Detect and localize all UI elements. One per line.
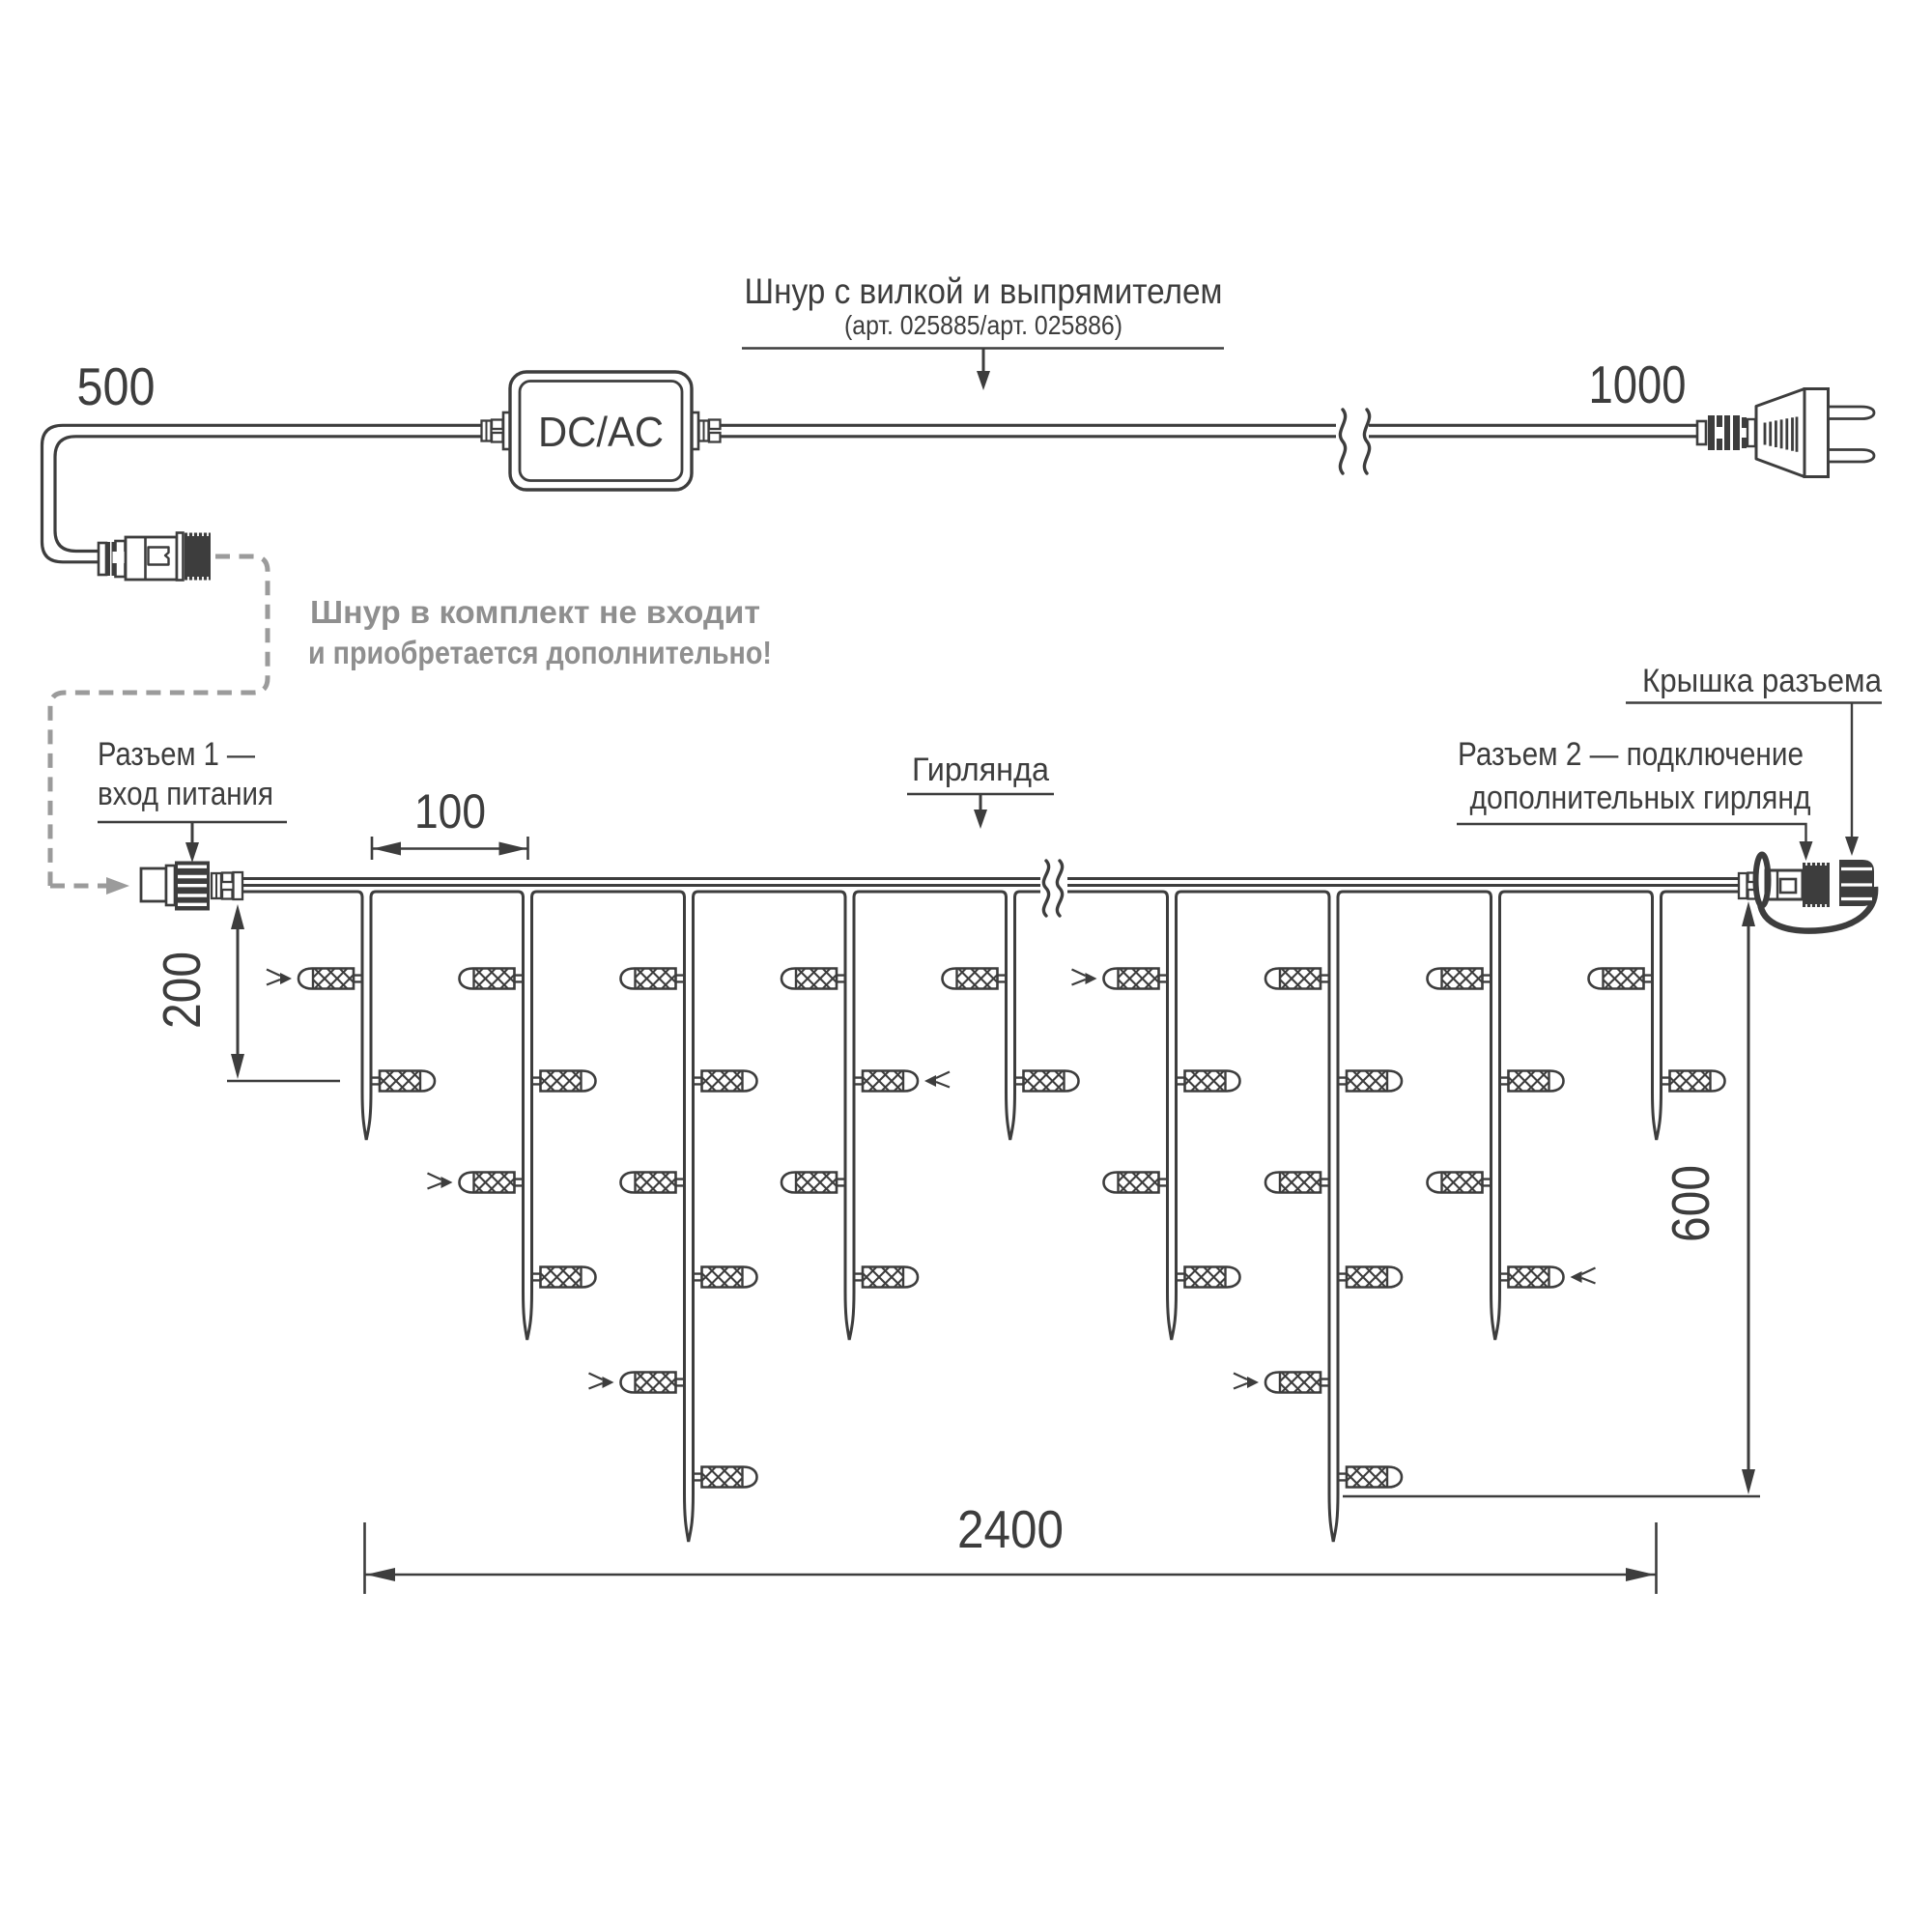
- svg-text:(арт. 025885/арт. 025886): (арт. 025885/арт. 025886): [844, 310, 1122, 340]
- svg-text:Гирлянда: Гирлянда: [912, 752, 1049, 788]
- svg-text:100: 100: [414, 784, 486, 838]
- svg-text:Шнур в комплект не входит: Шнур в комплект не входит: [310, 594, 760, 630]
- svg-text:Крышка разъема: Крышка разъема: [1642, 663, 1882, 699]
- svg-text:и приобретается дополнительно!: и приобретается дополнительно!: [308, 635, 772, 670]
- svg-text:Шнур с вилкой и выпрямителем: Шнур с вилкой и выпрямителем: [745, 271, 1223, 311]
- svg-text:Разъем 1 —: Разъем 1 —: [98, 736, 255, 773]
- svg-text:Разъем 2 — подключение: Разъем 2 — подключение: [1458, 736, 1804, 773]
- svg-text:дополнительных гирлянд: дополнительных гирлянд: [1470, 780, 1811, 816]
- svg-text:1000: 1000: [1589, 355, 1687, 414]
- svg-text:200: 200: [152, 952, 212, 1029]
- svg-text:500: 500: [77, 356, 156, 416]
- svg-text:600: 600: [1661, 1165, 1720, 1242]
- svg-text:вход питания: вход питания: [98, 776, 273, 812]
- svg-text:DC/AC: DC/AC: [538, 409, 664, 456]
- svg-text:2400: 2400: [957, 1499, 1064, 1559]
